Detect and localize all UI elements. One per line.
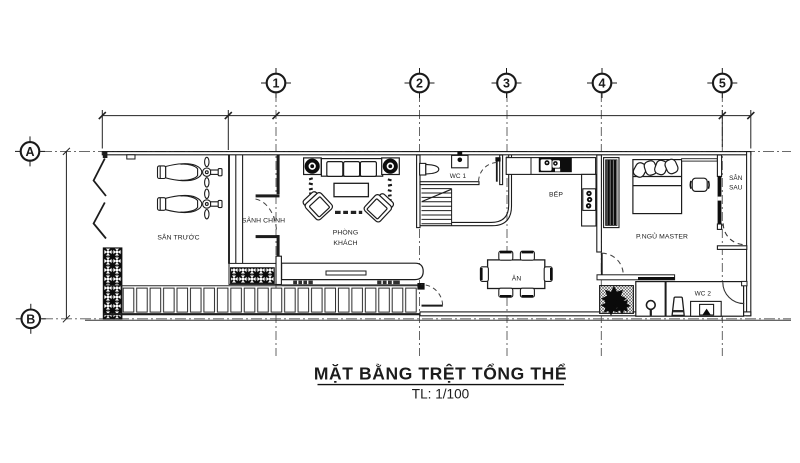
svg-text:SÂN TRƯỚC: SÂN TRƯỚC — [157, 233, 199, 242]
svg-text:SÂN: SÂN — [729, 173, 743, 182]
svg-text:PHÒNG: PHÒNG — [333, 228, 358, 237]
svg-text:SAU: SAU — [729, 185, 743, 192]
svg-text:4: 4 — [599, 77, 606, 91]
svg-text:WC 1: WC 1 — [450, 173, 467, 180]
svg-text:ĂN: ĂN — [512, 273, 522, 282]
svg-text:A: A — [25, 145, 34, 159]
svg-text:5: 5 — [719, 77, 726, 91]
svg-text:B: B — [26, 312, 35, 326]
svg-text:SẢNH CHÍNH: SẢNH CHÍNH — [242, 216, 285, 225]
svg-text:P.NGỦ MASTER: P.NGỦ MASTER — [636, 231, 688, 240]
svg-text:KHÁCH: KHÁCH — [333, 238, 357, 247]
svg-text:TL: 1/100: TL: 1/100 — [412, 387, 470, 402]
svg-text:3: 3 — [503, 77, 510, 91]
svg-text:2: 2 — [416, 77, 423, 91]
svg-text:MẶT BẰNG TRỆT TỔNG THỂ: MẶT BẰNG TRỆT TỔNG THỂ — [314, 363, 567, 384]
svg-text:1: 1 — [273, 77, 280, 91]
svg-text:WC 2: WC 2 — [695, 290, 712, 297]
